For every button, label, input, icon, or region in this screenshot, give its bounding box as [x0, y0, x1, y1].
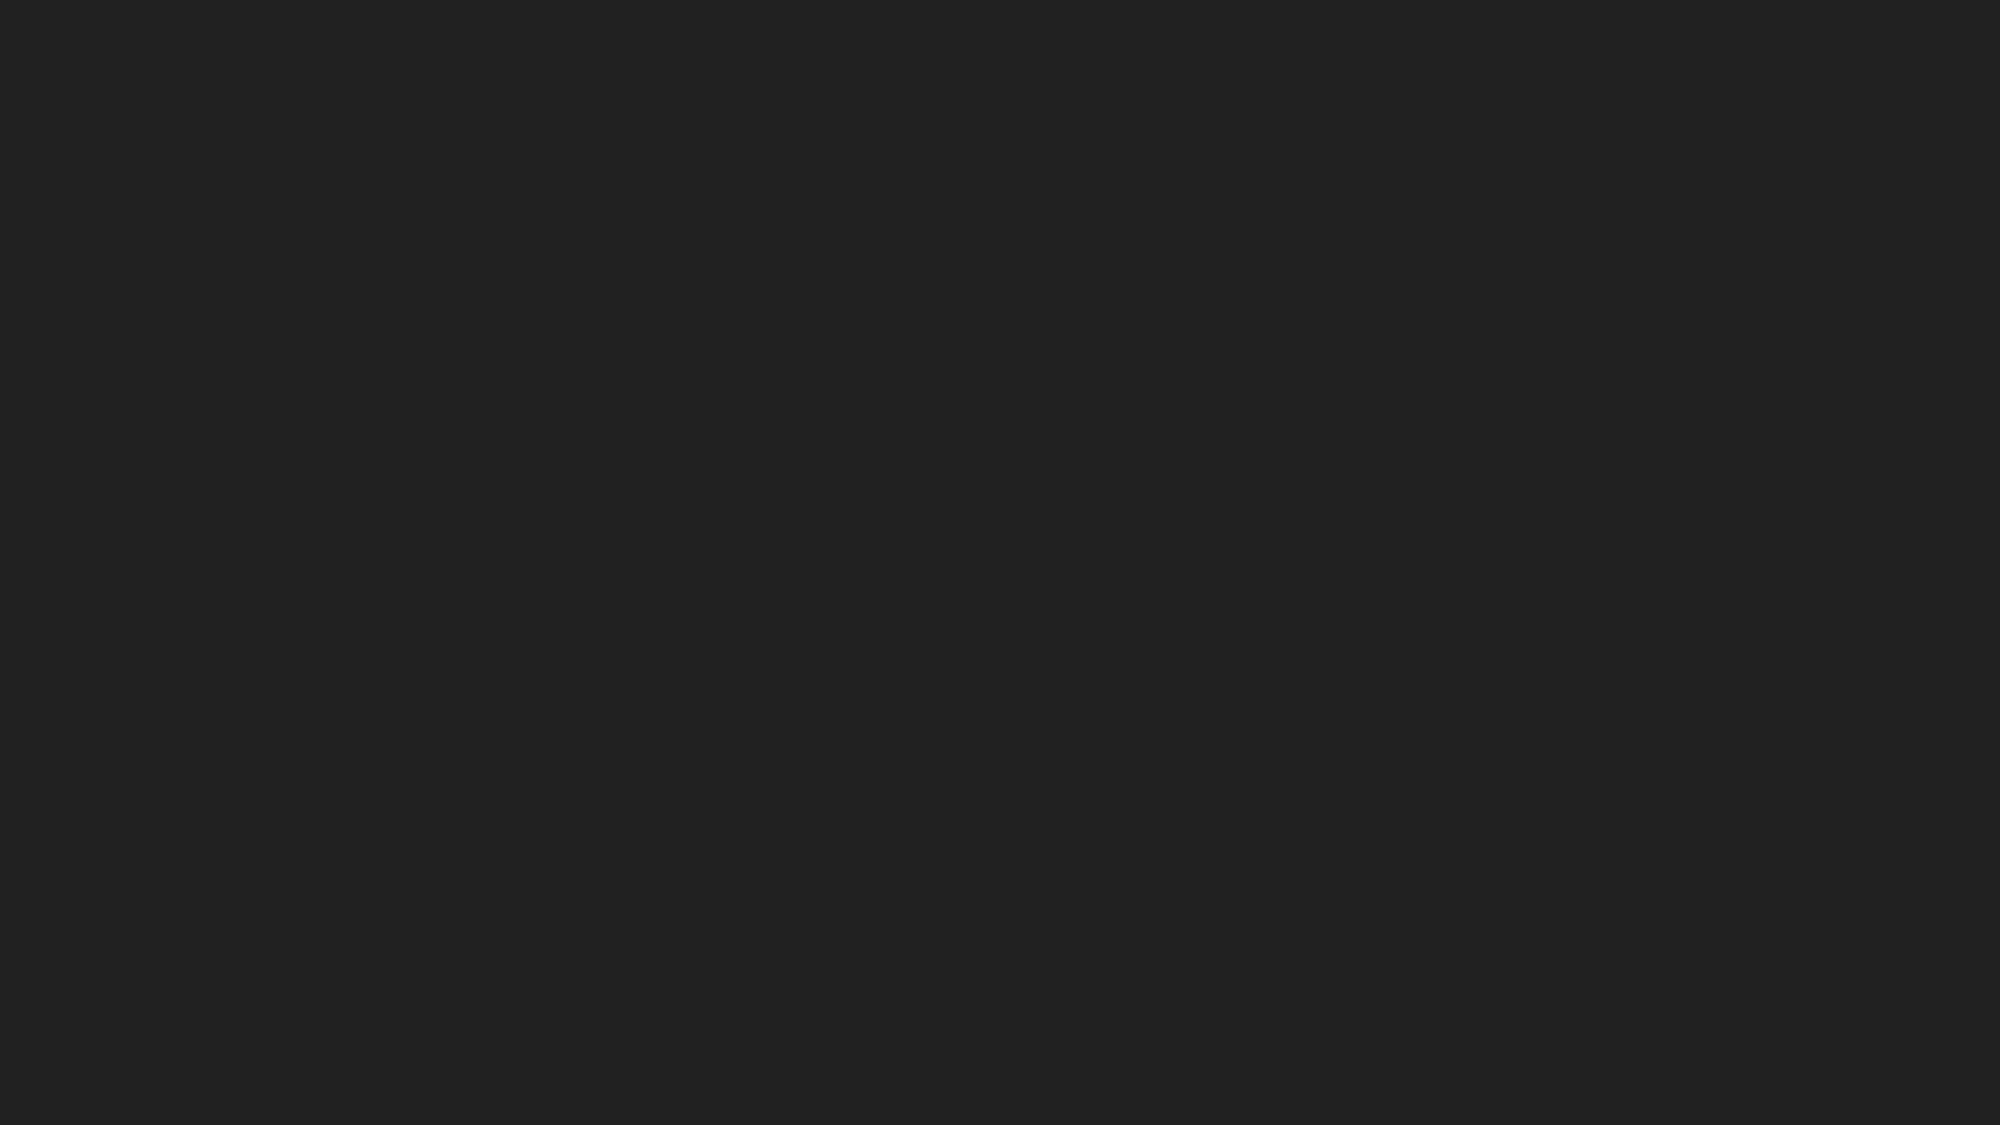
- aerial-photo: [0, 0, 2000, 1125]
- aerial-scene: [0, 0, 2000, 1125]
